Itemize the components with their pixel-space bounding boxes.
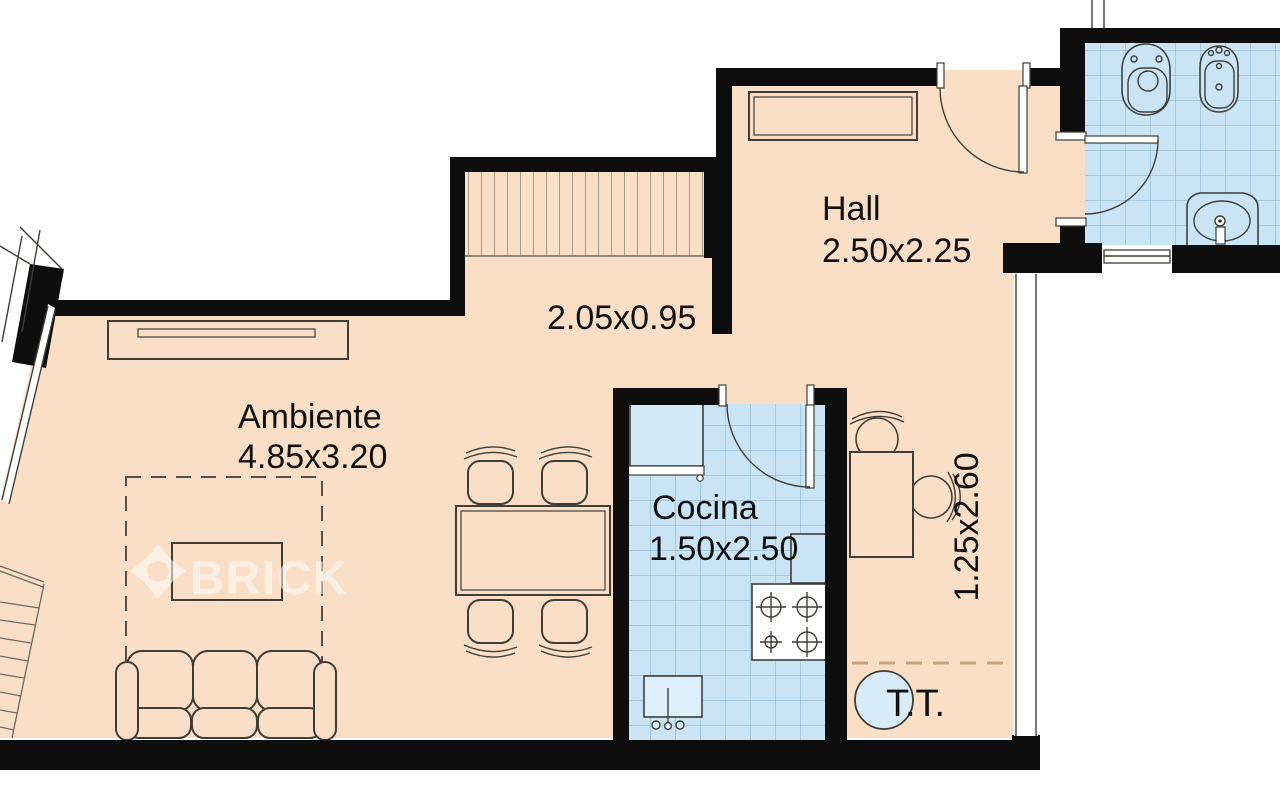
living-size-label: 4.85x3.20: [238, 438, 387, 476]
floor-plan-page: BRICK Hall 2.50x2.25 2.05x0.95 Ambiente …: [0, 0, 1280, 800]
closet-hatch: [465, 172, 705, 256]
wall-bath-bottom-left: [1003, 243, 1102, 273]
wall-hall-top-left: [716, 68, 944, 86]
wall-hall-left-lower: [712, 258, 732, 334]
laundry-label: T.T.: [886, 683, 945, 725]
sofa: [116, 651, 336, 740]
window-right-column: [1014, 274, 1038, 736]
wall-kitchen-left: [613, 388, 629, 740]
dining-table: [456, 506, 610, 595]
living-name-label: Ambiente: [238, 398, 382, 436]
bidet: [1200, 46, 1238, 112]
window-bathroom-sill: [1102, 245, 1172, 273]
wall-bath-bottom-right: [1172, 245, 1280, 273]
watermark-text: BRICK: [190, 551, 349, 604]
wardrobe-living: [108, 321, 348, 359]
toilet: [1122, 44, 1170, 115]
wall-bath-left-upper: [1060, 28, 1085, 140]
balcony-size-label: 1.25x2.60: [948, 452, 986, 601]
washbasin: [1187, 193, 1258, 248]
kitchen-name-label: Cocina: [652, 489, 758, 527]
bathroom-doorway-floor: [1058, 140, 1086, 220]
wall-bath-top: [1063, 28, 1280, 43]
wall-kitchen-right: [825, 388, 847, 740]
window-bathroom-top: [1092, 0, 1104, 28]
hall-name-label: Hall: [822, 190, 881, 228]
desk: [850, 452, 913, 557]
hall-size-label: 2.50x2.25: [822, 232, 971, 270]
wall-closet-top: [450, 157, 716, 172]
corridor-size-label: 2.05x0.95: [547, 299, 696, 337]
floor-plan-canvas: BRICK Hall 2.50x2.25 2.05x0.95 Ambiente …: [0, 0, 1280, 800]
wall-bottom: [0, 740, 1040, 770]
wall-living-top: [26, 300, 464, 316]
wall-closet-left: [450, 157, 465, 316]
stove: [752, 584, 827, 660]
fridge: [628, 404, 704, 481]
wall-bottom-right-corner: [1012, 735, 1040, 770]
wall-kitchen-top: [613, 388, 720, 405]
wardrobe-hall: [749, 92, 917, 140]
kitchen-size-label: 1.50x2.50: [649, 530, 798, 568]
wall-closet-hall: [704, 160, 732, 258]
